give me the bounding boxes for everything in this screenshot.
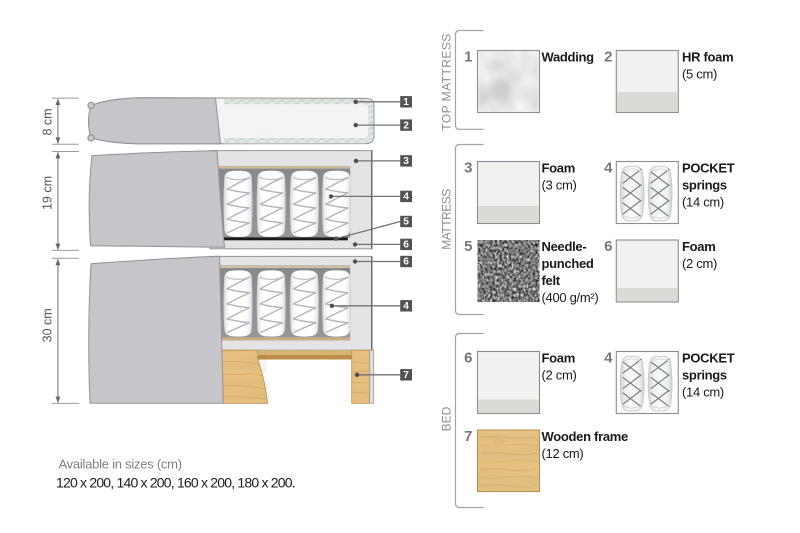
svg-text:4: 4 [604,160,613,177]
svg-text:(14 cm): (14 cm) [682,385,724,400]
svg-text:7: 7 [464,428,472,445]
svg-text:3: 3 [403,156,409,167]
svg-text:2: 2 [403,120,409,131]
svg-text:4: 4 [403,301,409,312]
svg-text:Wadding: Wadding [542,50,595,65]
svg-text:1: 1 [464,49,472,66]
svg-text:Wooden frame: Wooden frame [542,429,629,444]
svg-text:(2 cm): (2 cm) [542,368,577,383]
svg-text:Available in sizes (cm): Available in sizes (cm) [59,457,182,472]
svg-text:19 cm: 19 cm [41,176,55,210]
svg-text:3: 3 [464,160,472,177]
svg-text:4: 4 [403,192,409,203]
svg-text:(5 cm): (5 cm) [682,67,717,82]
svg-text:Foam: Foam [682,239,715,254]
svg-text:TOP MATTRESS: TOP MATTRESS [440,33,454,130]
svg-text:(12 cm): (12 cm) [542,446,584,461]
svg-text:springs: springs [682,178,727,193]
svg-text:felt: felt [542,273,561,288]
svg-text:6: 6 [604,238,612,255]
svg-text:(2 cm): (2 cm) [682,256,717,271]
svg-text:BED: BED [440,406,454,431]
svg-text:Foam: Foam [542,351,575,366]
svg-text:(3 cm): (3 cm) [542,178,577,193]
svg-text:5: 5 [403,217,409,228]
svg-text:6: 6 [403,240,409,251]
svg-text:120 x 200, 140 x 200, 160 x 20: 120 x 200, 140 x 200, 160 x 200, 180 x 2… [56,475,295,491]
svg-text:1: 1 [403,97,409,108]
svg-text:Needle-: Needle- [542,239,587,254]
svg-text:4: 4 [604,350,613,367]
svg-text:(14 cm): (14 cm) [682,195,724,210]
svg-text:springs: springs [682,368,727,383]
svg-text:(400 g/m²): (400 g/m²) [542,290,599,305]
svg-text:Foam: Foam [542,161,575,176]
svg-text:MATTRESS: MATTRESS [440,189,454,250]
svg-text:6: 6 [464,350,472,367]
svg-text:8 cm: 8 cm [41,108,55,135]
svg-text:POCKET: POCKET [682,351,735,366]
svg-text:30 cm: 30 cm [41,308,55,342]
svg-text:5: 5 [464,238,472,255]
svg-text:HR foam: HR foam [682,50,733,65]
svg-text:POCKET: POCKET [682,161,735,176]
svg-text:6: 6 [403,257,409,268]
svg-text:2: 2 [604,49,612,66]
svg-text:7: 7 [403,370,409,381]
svg-text:punched: punched [542,256,594,271]
